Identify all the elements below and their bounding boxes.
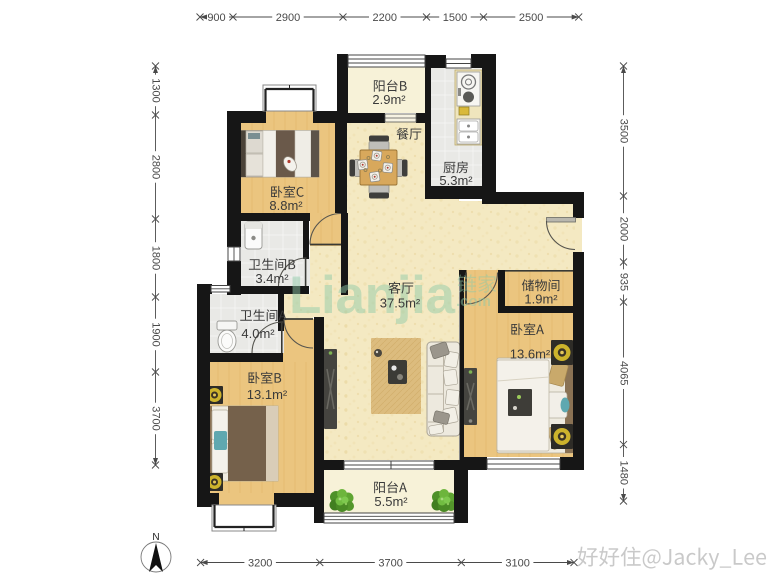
svg-text:8.8m²: 8.8m² — [269, 198, 303, 213]
svg-text:5.5m²: 5.5m² — [374, 494, 408, 509]
svg-text:1900: 1900 — [150, 322, 162, 346]
svg-text:4065: 4065 — [618, 361, 630, 385]
svg-text:3500: 3500 — [618, 119, 630, 143]
svg-text:935: 935 — [618, 273, 630, 291]
svg-text:1500: 1500 — [443, 12, 467, 24]
svg-text:2200: 2200 — [373, 12, 397, 24]
svg-text:2.9m²: 2.9m² — [372, 92, 406, 107]
svg-text:2500: 2500 — [519, 12, 543, 24]
svg-text:3100: 3100 — [505, 557, 529, 569]
svg-text:5.3m²: 5.3m² — [439, 173, 473, 188]
svg-text:1480: 1480 — [618, 461, 630, 485]
svg-text:.com: .com — [456, 293, 491, 310]
svg-text:900: 900 — [207, 12, 225, 24]
svg-text:Lianjia: Lianjia — [289, 266, 456, 325]
svg-text:13.1m²: 13.1m² — [247, 387, 288, 402]
svg-text:2800: 2800 — [150, 155, 162, 179]
svg-text:3.4m²: 3.4m² — [255, 271, 289, 286]
svg-text:3200: 3200 — [248, 557, 272, 569]
svg-text:N: N — [152, 532, 159, 543]
svg-text:3700: 3700 — [378, 557, 402, 569]
svg-text:1300: 1300 — [150, 78, 162, 102]
svg-text:1800: 1800 — [150, 246, 162, 270]
svg-text:1.9m²: 1.9m² — [524, 292, 558, 307]
svg-text:13.6m²: 13.6m² — [510, 347, 551, 362]
svg-text:2900: 2900 — [276, 12, 300, 24]
svg-text:4.0m²: 4.0m² — [241, 326, 275, 341]
svg-text:37.5m²: 37.5m² — [380, 296, 421, 311]
svg-text:3700: 3700 — [150, 406, 162, 430]
svg-text:2000: 2000 — [618, 217, 630, 241]
